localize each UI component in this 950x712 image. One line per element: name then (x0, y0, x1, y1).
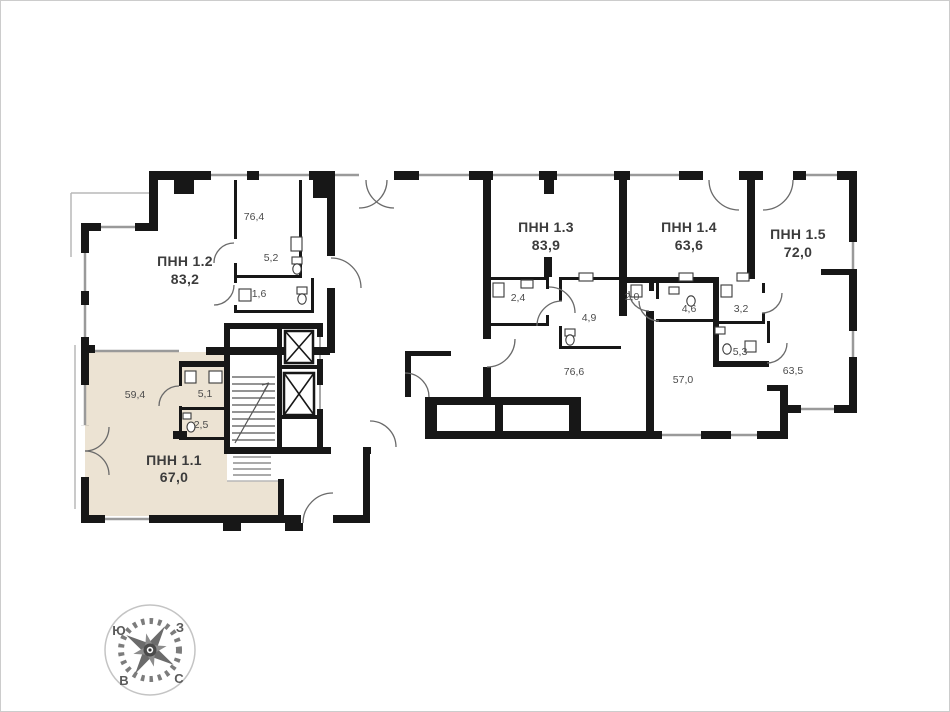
room-label-5-3: 5,3 (733, 346, 748, 358)
room-label-2-4: 2,4 (511, 292, 526, 304)
elevator-shaft-icon (284, 331, 314, 415)
unit-label-pnn-1-1-name: ПНН 1.1 (146, 452, 202, 468)
room-label-4-9: 4,9 (582, 312, 597, 324)
unit-label-pnn-1-3-area: 83,9 (532, 237, 560, 253)
room-label-76-4: 76,4 (244, 211, 265, 223)
room-label-1-6: 1,6 (252, 288, 267, 300)
compass-rose: Ю З В С (105, 605, 195, 695)
floorplan-svg: ПНН 1.1 67,0 ПНН 1.2 83,2 ПНН 1.3 83,9 П… (1, 1, 950, 712)
room-label-3-2: 3,2 (734, 303, 749, 315)
unit-label-pnn-1-3-name: ПНН 1.3 (518, 219, 574, 235)
unit-label-pnn-1-4-area: 63,6 (675, 237, 703, 253)
room-label-2-5: 2,5 (194, 419, 209, 431)
bay-windows (437, 405, 569, 431)
unit-label-pnn-1-2-name: ПНН 1.2 (157, 253, 213, 269)
unit-label-pnn-1-5-area: 72,0 (784, 244, 812, 260)
room-label-57-0: 57,0 (673, 374, 694, 386)
compass-letter-bottom-right: С (174, 671, 184, 686)
staircase-icon (232, 377, 275, 475)
compass-letter-top-right: З (176, 620, 184, 635)
room-label-59-4: 59,4 (125, 389, 146, 401)
compass-letter-bottom-left: В (119, 673, 128, 688)
compass-letter-top-left: Ю (112, 623, 125, 638)
room-label-5-1: 5,1 (198, 388, 213, 400)
room-label-5-2: 5,2 (264, 252, 279, 264)
unit-label-pnn-1-4-name: ПНН 1.4 (661, 219, 717, 235)
room-label-76-6: 76,6 (564, 366, 585, 378)
floorplan-page: ПНН 1.1 67,0 ПНН 1.2 83,2 ПНН 1.3 83,9 П… (0, 0, 950, 712)
unit-label-pnn-1-1-area: 67,0 (160, 469, 188, 485)
room-label-4-6: 4,6 (682, 303, 697, 315)
room-label-63-5: 63,5 (783, 365, 804, 377)
unit-label-pnn-1-2-area: 83,2 (171, 271, 199, 287)
compass-hub-dot (148, 648, 151, 651)
unit-label-pnn-1-5-name: ПНН 1.5 (770, 226, 826, 242)
room-label-2-0: 2,0 (625, 291, 640, 303)
